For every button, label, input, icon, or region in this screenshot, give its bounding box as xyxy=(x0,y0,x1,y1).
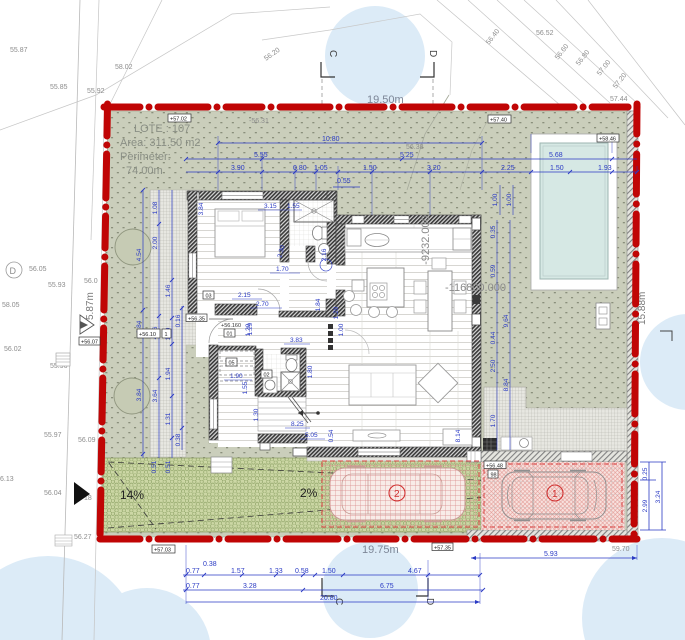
svg-text:1.50: 1.50 xyxy=(322,568,336,575)
svg-text:-9232.000: -9232.000 xyxy=(420,215,432,265)
svg-text:0.77: 0.77 xyxy=(186,568,200,575)
svg-text:2.50: 2.50 xyxy=(490,359,497,372)
svg-text:55.92: 55.92 xyxy=(87,88,105,95)
svg-text:2.99: 2.99 xyxy=(642,499,649,512)
svg-text:1.50: 1.50 xyxy=(363,165,377,172)
svg-text:55.87: 55.87 xyxy=(10,47,28,54)
svg-text:14%: 14% xyxy=(120,488,144,502)
svg-text:1.20: 1.20 xyxy=(245,323,252,336)
svg-text:98: 98 xyxy=(491,473,497,479)
svg-text:74.00m: 74.00m xyxy=(126,165,163,177)
svg-text:3.15: 3.15 xyxy=(264,203,277,210)
svg-text:+56.07: +56.07 xyxy=(81,340,98,346)
svg-text:9.64: 9.64 xyxy=(503,314,510,327)
svg-text:3.84: 3.84 xyxy=(198,202,205,215)
svg-text:3.28: 3.28 xyxy=(243,583,257,590)
svg-text:1.94: 1.94 xyxy=(165,367,172,380)
svg-text:1.55: 1.55 xyxy=(242,381,249,394)
svg-text:19.75m: 19.75m xyxy=(362,544,399,556)
svg-text:1.00: 1.00 xyxy=(338,323,345,336)
svg-text:+56.160: +56.160 xyxy=(221,323,241,329)
svg-text:1.55: 1.55 xyxy=(287,203,300,210)
svg-text:1: 1 xyxy=(552,489,558,500)
svg-text:01: 01 xyxy=(227,332,233,338)
svg-text:05: 05 xyxy=(229,361,235,367)
svg-text:0.44: 0.44 xyxy=(490,331,497,344)
svg-text:2.25: 2.25 xyxy=(501,165,515,172)
svg-text:0.35: 0.35 xyxy=(490,225,497,238)
svg-text:C: C xyxy=(327,50,338,57)
svg-text:1.31: 1.31 xyxy=(165,412,172,425)
svg-text:58.05: 58.05 xyxy=(2,302,20,309)
svg-text:3.64: 3.64 xyxy=(152,389,159,402)
svg-text:5.68: 5.68 xyxy=(549,152,563,159)
svg-text:6.13: 6.13 xyxy=(0,476,14,483)
svg-text:56.09: 56.09 xyxy=(78,437,96,444)
svg-text:+57.03: +57.03 xyxy=(154,548,171,554)
svg-text:3.84: 3.84 xyxy=(136,388,143,401)
svg-text:56.52: 56.52 xyxy=(536,30,554,37)
svg-text:5.55: 5.55 xyxy=(254,152,268,159)
svg-text:5.05: 5.05 xyxy=(305,432,318,439)
svg-text:D: D xyxy=(10,266,17,276)
svg-text:1.05: 1.05 xyxy=(314,165,328,172)
svg-text:1.33: 1.33 xyxy=(269,568,283,575)
svg-text:1.00: 1.00 xyxy=(492,193,499,206)
svg-text:8.25: 8.25 xyxy=(291,421,304,428)
svg-text:03: 03 xyxy=(206,294,212,300)
svg-text:+57.40: +57.40 xyxy=(490,118,507,124)
svg-text:56.27: 56.27 xyxy=(74,534,92,541)
svg-text:2.00: 2.00 xyxy=(152,236,159,249)
svg-text:0.54: 0.54 xyxy=(328,429,335,442)
svg-text:0.38: 0.38 xyxy=(175,433,182,446)
svg-text:1.70: 1.70 xyxy=(276,266,289,273)
svg-text:0.77: 0.77 xyxy=(186,583,200,590)
svg-text:8.14: 8.14 xyxy=(455,429,462,442)
svg-text:5.25: 5.25 xyxy=(400,152,414,159)
svg-text:4.54: 4.54 xyxy=(136,248,143,261)
svg-text:+56.35: +56.35 xyxy=(188,316,205,322)
svg-text:5.87m: 5.87m xyxy=(85,292,96,320)
svg-text:Area: 311.50 m2: Area: 311.50 m2 xyxy=(120,137,201,149)
svg-text:1.84: 1.84 xyxy=(315,298,322,311)
svg-text:2.70: 2.70 xyxy=(256,301,269,308)
svg-text:0.58: 0.58 xyxy=(295,568,309,575)
svg-text:0.25: 0.25 xyxy=(642,467,649,480)
svg-text:57.44: 57.44 xyxy=(610,96,628,103)
svg-text:0.80: 0.80 xyxy=(293,165,307,172)
svg-text:1.90: 1.90 xyxy=(230,373,243,380)
svg-text:58.02: 58.02 xyxy=(115,64,133,71)
svg-text:LOTE : 107: LOTE : 107 xyxy=(134,123,190,135)
svg-text:Perimeter:: Perimeter: xyxy=(120,151,171,163)
svg-text:2: 2 xyxy=(394,489,400,500)
svg-text:59.70: 59.70 xyxy=(612,546,630,553)
svg-text:1.00: 1.00 xyxy=(506,193,513,206)
svg-text:4.67: 4.67 xyxy=(408,568,422,575)
svg-text:+58.46: +58.46 xyxy=(599,137,616,143)
svg-text:-116800.000: -116800.000 xyxy=(445,282,506,294)
svg-text:+56.10: +56.10 xyxy=(139,332,156,338)
svg-text:3.90: 3.90 xyxy=(231,165,245,172)
svg-text:1.80: 1.80 xyxy=(307,365,314,378)
svg-text:0.55: 0.55 xyxy=(337,178,351,185)
svg-text:+56.48: +56.48 xyxy=(486,463,503,469)
svg-text:1.29: 1.29 xyxy=(333,306,340,319)
svg-text:2%: 2% xyxy=(300,486,318,500)
svg-text:0.16: 0.16 xyxy=(175,314,182,327)
svg-text:0.59: 0.59 xyxy=(490,264,497,277)
svg-text:55.85: 55.85 xyxy=(50,84,68,91)
svg-text:3.83: 3.83 xyxy=(290,337,303,344)
svg-text:02: 02 xyxy=(264,373,270,379)
svg-text:56.38: 56.38 xyxy=(406,144,424,151)
svg-text:56.0: 56.0 xyxy=(84,278,98,285)
svg-text:0.38: 0.38 xyxy=(203,561,217,568)
svg-text:2.15: 2.15 xyxy=(238,292,251,299)
svg-text:1.08: 1.08 xyxy=(152,201,159,214)
svg-text:56.02: 56.02 xyxy=(4,346,22,353)
svg-text:8.84: 8.84 xyxy=(503,378,510,391)
svg-text:1.70: 1.70 xyxy=(490,414,497,427)
svg-text:5.93: 5.93 xyxy=(544,551,558,558)
svg-text:6.75: 6.75 xyxy=(380,583,394,590)
svg-text:0.51: 0.51 xyxy=(151,460,158,473)
svg-text:-56.31: -56.31 xyxy=(249,118,269,125)
svg-text:1: 1 xyxy=(165,332,168,338)
svg-text:1.50: 1.50 xyxy=(550,165,564,172)
svg-text:1.57: 1.57 xyxy=(231,568,245,575)
svg-text:D: D xyxy=(427,50,438,57)
svg-text:1.46: 1.46 xyxy=(165,284,172,297)
svg-text:55.93: 55.93 xyxy=(48,282,66,289)
svg-text:3.20: 3.20 xyxy=(427,165,441,172)
svg-text:20.80: 20.80 xyxy=(320,595,338,602)
svg-text:1.30: 1.30 xyxy=(253,408,260,421)
svg-text:+57.02: +57.02 xyxy=(170,117,187,123)
svg-text:0.51: 0.51 xyxy=(165,460,172,473)
svg-text:10.80: 10.80 xyxy=(322,136,340,143)
svg-text:55.97: 55.97 xyxy=(44,432,62,439)
svg-text:3.24: 3.24 xyxy=(655,490,662,503)
svg-text:56.05: 56.05 xyxy=(29,266,47,273)
svg-text:1.93: 1.93 xyxy=(598,165,612,172)
svg-text:56.04: 56.04 xyxy=(44,490,62,497)
svg-text:+57.35: +57.35 xyxy=(434,545,451,551)
